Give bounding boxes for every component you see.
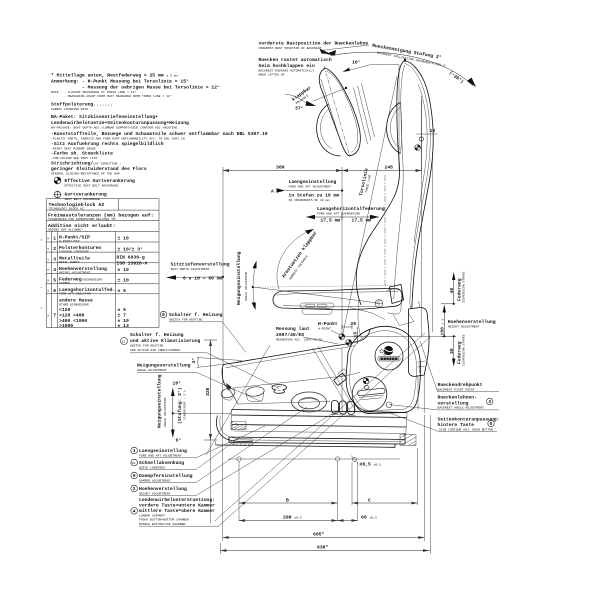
svg-text:HEIGHT ADJUSTMENT: HEIGHT ADJUSTMENT — [139, 491, 171, 495]
svg-text:X: X — [47, 279, 49, 283]
svg-text:-RIGHT SEAT MIRROR IMAGE: -RIGHT SEAT MIRROR IMAGE — [51, 147, 96, 151]
svg-text:B: B — [286, 498, 289, 504]
svg-text:FABRIC COVERING WITH ......: FABRIC COVERING WITH ...... — [51, 107, 101, 111]
svg-text:-PLASTIC PARTS, FABRICS AND FO: -PLASTIC PARTS, FABRICS AND FOAM PART UN… — [51, 137, 185, 141]
svg-text:360: 360 — [276, 164, 285, 170]
svg-text:X: X — [47, 237, 49, 241]
svg-text:10°: 10° — [173, 381, 182, 387]
svg-text:x: x — [41, 306, 43, 310]
svg-text:OTHER DIMENSIONS: OTHER DIMENSIONS — [59, 302, 89, 306]
svg-text:IN INCREMENTS OF 10 mm: IN INCREMENTS OF 10 mm — [289, 198, 330, 202]
svg-text:- MEASURING APART FROM THAT ME: - MEASURING APART FROM THAT MEASURED FRO… — [64, 94, 172, 98]
svg-text:<120: <120 — [59, 307, 70, 313]
svg-text:*: * — [41, 286, 43, 290]
svg-text:BA-Paket: Sitzkissentiefeneins: BA-Paket: Sitzkissentiefeneinstellung+ — [51, 114, 158, 120]
svg-text:BA-PACKAGE: SEAT DEPTH ADJ./LU: BA-PACKAGE: SEAT DEPTH ADJ./LUMBAR SUPPO… — [51, 126, 177, 130]
svg-text:17,5 mm: 17,5 mm — [352, 217, 372, 223]
svg-text:Messung laut: Messung laut — [276, 326, 310, 332]
svg-text:6 x 10 = 60 mm: 6 x 10 = 60 mm — [183, 276, 223, 282]
svg-text:X: X — [47, 289, 49, 293]
svg-text:QUICK LOWERING: QUICK LOWERING — [139, 465, 165, 469]
svg-text:DAMPER ADJUSTMENT: DAMPER ADJUSTMENT — [139, 478, 171, 482]
svg-text:2: 2 — [53, 246, 56, 252]
svg-text:AND ACTIVE AIR CONDITIONING: AND ACTIVE AIR CONDITIONING — [130, 348, 180, 352]
svg-text:Schalter f. Heizung: Schalter f. Heizung — [130, 332, 184, 338]
svg-text:FORE AND AFT SUSPENSION: FORE AND AFT SUSPENSION — [317, 211, 360, 215]
svg-text:ANGLE ADJUSTMENT: ANGLE ADJUSTMENT — [163, 397, 167, 427]
svg-text:± 10: ± 10 — [118, 267, 129, 273]
svg-text:-FOR COLOUR SEE PART LIST: -FOR COLOUR SEE PART LIST — [51, 156, 98, 160]
svg-text:>120 <400: >120 <400 — [59, 313, 85, 319]
svg-text:± 7: ± 7 — [118, 313, 127, 319]
svg-text:FOREMOST REST POSITION OF BACK: FOREMOST REST POSITION OF BACKREST — [259, 46, 322, 50]
svg-text:>1000: >1000 — [59, 323, 73, 329]
svg-text:METAL PARTS: METAL PARTS — [59, 260, 80, 264]
svg-text:13: 13 — [122, 340, 126, 344]
svg-text:BACKREST PIVOT POINT: BACKREST PIVOT POINT — [438, 387, 475, 391]
svg-text:DIN 6930-g: DIN 6930-g — [117, 255, 145, 261]
svg-text:1: 1 — [133, 448, 136, 454]
svg-text:X: X — [47, 268, 49, 272]
svg-text:WHEN LIFTED UP: WHEN LIFTED UP — [259, 73, 285, 77]
svg-text:H-POINT: H-POINT — [318, 326, 331, 330]
svg-text:SUSPENSION STROKE: SUSPENSION STROKE — [461, 334, 465, 366]
svg-text:vordere Taste=untere Kammer: vordere Taste=untere Kammer — [139, 503, 215, 509]
svg-text:30: 30 — [449, 348, 455, 354]
svg-text:± 13: ± 13 — [118, 323, 129, 329]
svg-text:4: 4 — [133, 509, 136, 515]
svg-text:320: 320 — [205, 387, 211, 396]
svg-text:37°: 37° — [295, 106, 304, 112]
svg-text:6°: 6° — [176, 438, 182, 444]
svg-text:MIDDLE BUTTON=TOP CHAMBER: MIDDLE BUTTON=TOP CHAMBER — [139, 522, 186, 526]
svg-text:ISO 13920-A: ISO 13920-A — [117, 261, 148, 267]
svg-text:HEIGHT ADJUSTMENT: HEIGHT ADJUSTMENT — [59, 271, 91, 275]
svg-text:TECHNOLOGY BLOCK AZ: TECHNOLOGY BLOCK AZ — [49, 207, 84, 211]
svg-text:SEAT DEPTH ADJUSTMENT: SEAT DEPTH ADJUSTMENT — [171, 267, 210, 271]
svg-text:MINIMAL SLIDING-RESISTANCE OF: MINIMAL SLIDING-RESISTANCE OF THE NAP — [51, 172, 120, 176]
svg-text:2: 2 — [133, 486, 136, 492]
svg-text:Neigungseinstellung: Neigungseinstellung — [236, 251, 242, 305]
svg-text:SIDE CONTOUR ADJ. REAR BUTTON: SIDE CONTOUR ADJ. REAR BUTTON — [439, 427, 493, 431]
svg-text:15: 15 — [430, 128, 436, 134]
svg-text:ADDING NOT ALLOWED!: ADDING NOT ALLOWED! — [48, 228, 83, 232]
svg-text:630*: 630* — [317, 545, 328, 551]
svg-text:C: C — [368, 498, 371, 504]
svg-text:EFFECTIVE SEAT BELT ANCHORAGE: EFFECTIVE SEAT BELT ANCHORAGE — [65, 184, 119, 188]
svg-text:6: 6 — [53, 288, 56, 294]
svg-text:STROKE: STROKE — [59, 281, 70, 285]
svg-text:Lendenwirbelunterstuetzung:: Lendenwirbelunterstuetzung: — [139, 497, 215, 503]
svg-text:SUSPENSION STROKE: SUSPENSION STROKE — [461, 271, 465, 303]
svg-text:10: 10 — [132, 461, 136, 465]
svg-text:CUSHION CONTOURS: CUSHION CONTOURS — [59, 250, 89, 254]
svg-text:± 10: ± 10 — [118, 236, 129, 242]
svg-text:4°: 4° — [191, 358, 197, 364]
svg-text:± 5: ± 5 — [118, 288, 127, 294]
svg-text:(INCREMENT : 2°): (INCREMENT : 2°) — [182, 390, 186, 420]
svg-text:BACKREST ANGLE ADJUSTMENT: BACKREST ANGLE ADJUSTMENT — [438, 406, 485, 410]
svg-text:16°: 16° — [352, 60, 361, 66]
svg-text:SWITCH FOR HEATING: SWITCH FOR HEATING — [130, 344, 164, 348]
svg-text:± 10/± 3°: ± 10/± 3° — [118, 247, 144, 253]
svg-text:5: 5 — [490, 421, 493, 427]
svg-text:SWITCH FOR HEATING: SWITCH FOR HEATING — [169, 317, 203, 321]
svg-text:x: x — [41, 238, 43, 242]
svg-text:FORE AND AFT ADJUSTMENT: FORE AND AFT ADJUSTMENT — [139, 454, 182, 458]
svg-text:FORE AND AFT ADJUSTMENT: FORE AND AFT ADJUSTMENT — [289, 184, 332, 188]
svg-text:SEAT BELT ANCHORAGE: SEAT BELT ANCHORAGE — [65, 197, 100, 201]
svg-text:ANGLE ADJUSTMENT: ANGLE ADJUSTMENT — [137, 368, 167, 372]
svg-text:9: 9 — [133, 473, 136, 479]
svg-text:Neigungseinstellung: Neigungseinstellung — [157, 374, 163, 428]
svg-text:17,5 mm: 17,5 mm — [321, 217, 341, 223]
svg-text:± 5: ± 5 — [118, 307, 127, 313]
svg-text:ANGLE ADJUSTMENT: ANGLE ADJUSTMENT — [244, 271, 248, 301]
svg-text:7: 7 — [53, 313, 56, 319]
svg-text:4: 4 — [53, 267, 56, 273]
svg-text:* Mittellage unten, Restfederw: * Mittellage unten, Restfederweg = 25 mm… — [51, 73, 178, 79]
svg-text:FORE AFT ISOLATOR: FORE AFT ISOLATOR — [59, 292, 91, 296]
svg-text:X: X — [47, 258, 49, 262]
svg-text:X: X — [47, 247, 49, 251]
svg-text:8: 8 — [162, 312, 165, 318]
svg-text:H-POINT/SIP: H-POINT/SIP — [59, 239, 80, 243]
svg-text:40: 40 — [449, 288, 455, 294]
svg-text:1: 1 — [53, 236, 56, 242]
svg-text:Ruecken rastet automatisch: Ruecken rastet automatisch — [259, 57, 332, 63]
svg-text:3: 3 — [488, 399, 491, 405]
svg-text:Rueckenlehnen-: Rueckenlehnen- — [438, 395, 478, 401]
svg-text:TOLERANCES FOR DIMENSIONS RELA: TOLERANCES FOR DIMENSIONS RELATED TO: — [48, 217, 117, 221]
svg-text:245: 245 — [385, 164, 394, 170]
svg-text:20: 20 — [351, 321, 357, 327]
svg-text:3: 3 — [53, 257, 56, 263]
svg-text:5: 5 — [53, 278, 56, 284]
svg-text:605*: 605* — [313, 532, 324, 538]
svg-text:HEIGHT ADJUSTMENT: HEIGHT ADJUSTMENT — [448, 324, 480, 328]
svg-text:X: X — [47, 314, 49, 318]
svg-text:Anmerkung: - H-Punkt Messung b: Anmerkung: - H-Punkt Messung bei Torsoli… — [51, 79, 189, 85]
svg-text:± 10: ± 10 — [118, 278, 129, 284]
svg-text:A: A — [271, 189, 274, 195]
